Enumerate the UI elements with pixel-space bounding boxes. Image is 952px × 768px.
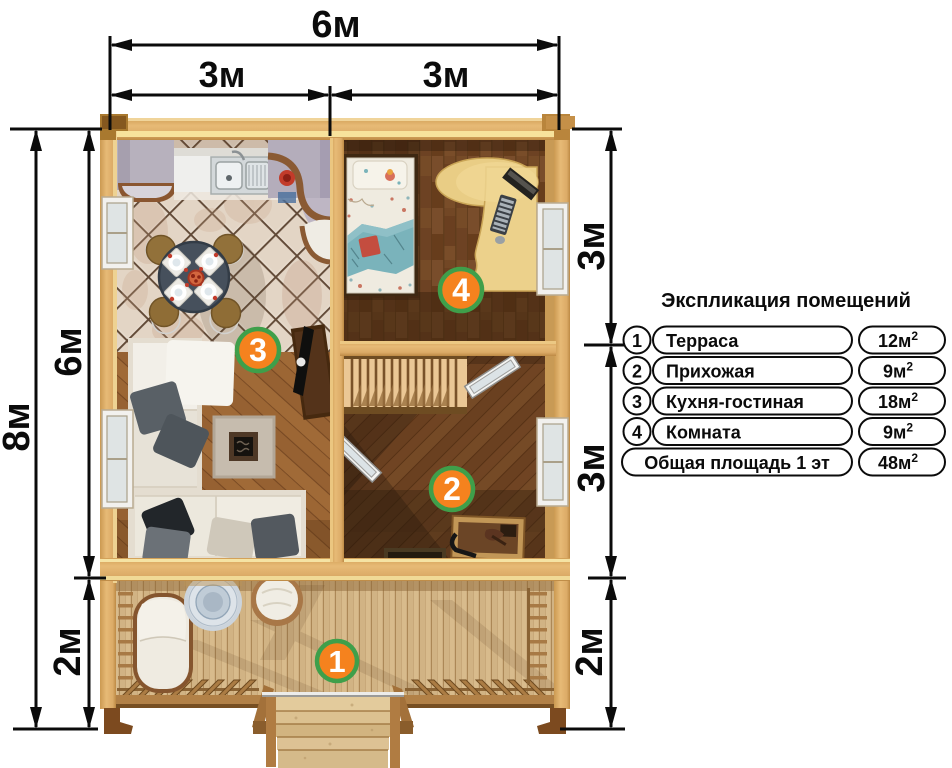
svg-text:3: 3 [249,332,267,368]
svg-text:2: 2 [443,471,461,507]
svg-text:3м: 3м [571,221,613,270]
svg-text:Экспликация помещений: Экспликация помещений [661,290,911,312]
svg-text:2м: 2м [47,627,89,676]
svg-text:2: 2 [632,362,642,382]
svg-text:3м: 3м [423,54,470,95]
svg-text:Терраса: Терраса [666,331,739,351]
svg-text:Общая площадь 1 эт: Общая площадь 1 эт [644,453,830,473]
svg-text:3м: 3м [199,54,246,95]
svg-text:Комната: Комната [666,423,742,443]
svg-text:3: 3 [632,392,642,412]
svg-text:Кухня-гостиная: Кухня-гостиная [666,392,804,412]
svg-text:Прихожая: Прихожая [666,362,755,382]
svg-text:2м: 2м [569,627,611,676]
svg-text:1: 1 [328,644,345,679]
svg-text:3м: 3м [571,443,613,492]
svg-text:6м: 6м [48,327,90,376]
svg-text:1: 1 [632,331,642,351]
svg-text:4: 4 [632,423,642,443]
svg-text:8м: 8м [0,402,38,451]
svg-text:4: 4 [452,272,470,308]
svg-text:6м: 6м [311,4,360,46]
